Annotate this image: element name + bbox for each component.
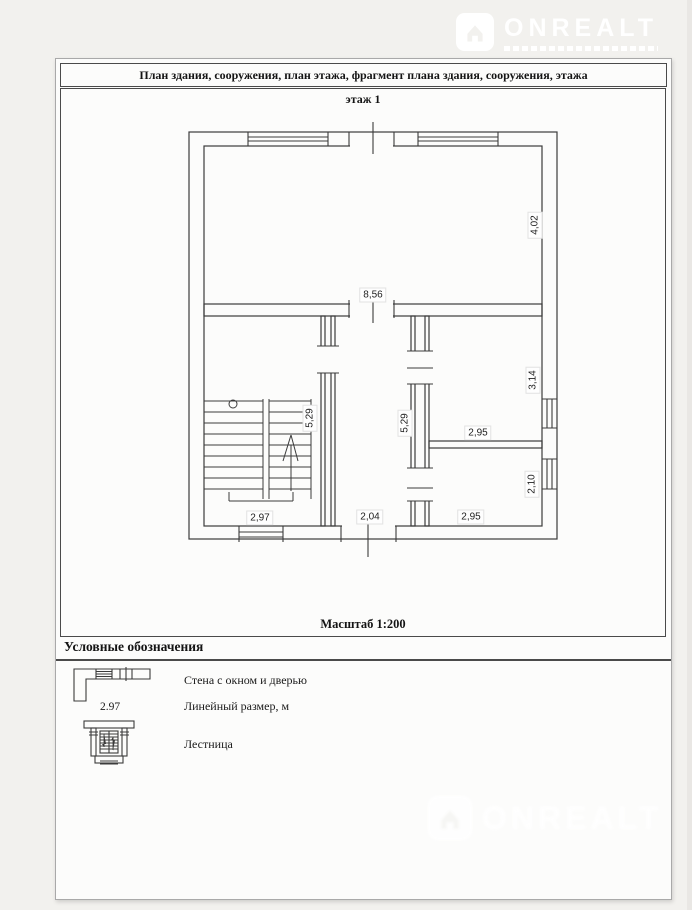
dimension-label: 3,14 — [527, 367, 540, 392]
staircase — [204, 399, 311, 501]
stairs-icon — [82, 717, 136, 769]
watermark-top: ONREALT — [456, 13, 658, 51]
stair-direction-arrow — [283, 435, 298, 491]
dimension-label: 8,56 — [360, 289, 385, 302]
legend-heading: Условные обозначения — [64, 639, 203, 655]
legend-dimension-sample: 2.97 — [100, 701, 120, 713]
document-page: План здания, сооружения, план этажа, фра… — [55, 58, 672, 900]
onrealt-house-icon — [456, 13, 494, 51]
dimension-label: 5,29 — [399, 410, 412, 435]
floor-plan-drawing — [61, 89, 665, 636]
legend-item-label: Лестница — [184, 737, 233, 752]
windows-and-doors — [239, 122, 557, 557]
floor-plan-frame: этаж 1 — [60, 88, 666, 637]
onrealt-house-icon — [428, 796, 472, 840]
legend-item-label: Стена с окном и дверью — [184, 673, 307, 688]
page-title: План здания, сооружения, план этажа, фра… — [60, 63, 667, 87]
watermark-brand-text: ONREALT — [504, 14, 658, 43]
watermark-subtext-strip — [504, 46, 658, 51]
wall-with-window-and-door-icon — [72, 667, 154, 703]
legend-divider — [56, 659, 671, 661]
watermark-brand-text: ONREALT — [482, 800, 662, 837]
watermark-bottom: ONREALT — [428, 796, 662, 840]
dimension-label: 2,95 — [458, 511, 483, 524]
dimension-label: 2,95 — [465, 427, 490, 440]
legend-item-label: Линейный размер, м — [184, 699, 289, 714]
dimension-label: 5,29 — [304, 405, 317, 430]
dimension-label: 2,04 — [357, 511, 382, 524]
image-edge-strip — [687, 0, 692, 910]
dimension-label: 2,97 — [247, 512, 272, 525]
dimension-label: 2,10 — [526, 471, 539, 496]
scale-label: Масштаб 1:200 — [61, 617, 665, 632]
dimension-label: 4,02 — [529, 212, 542, 237]
